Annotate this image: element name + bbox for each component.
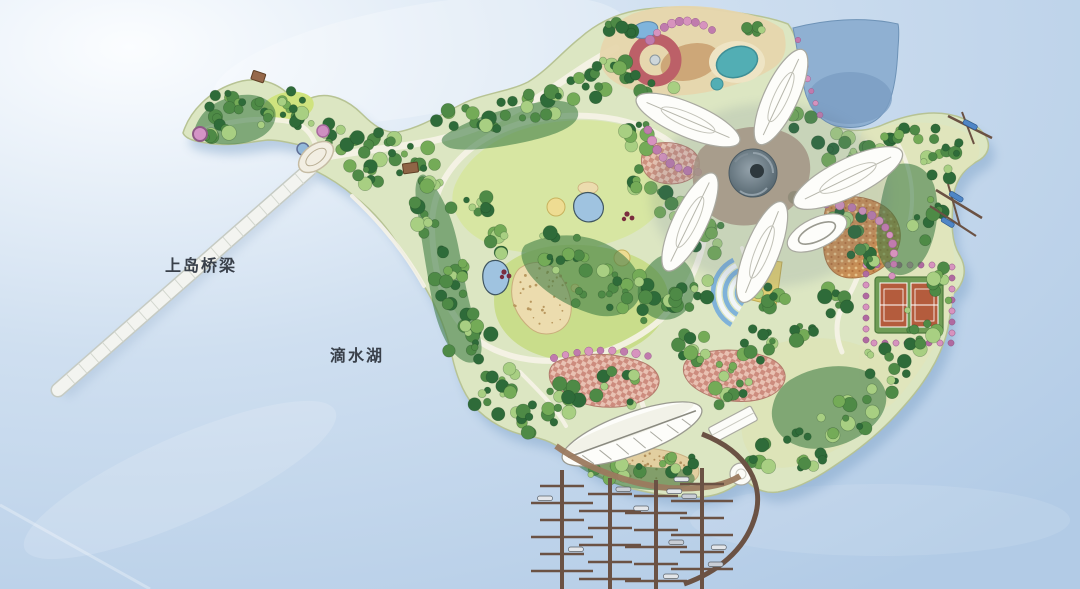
tree <box>902 370 910 378</box>
tree <box>885 352 894 361</box>
garden-circle-pink <box>193 127 207 141</box>
flowering-tree <box>683 17 691 25</box>
tree <box>886 386 899 399</box>
tree <box>263 113 272 122</box>
tree <box>473 354 483 364</box>
sand-speckle <box>519 281 521 283</box>
tree <box>486 371 498 383</box>
tree <box>500 232 508 240</box>
tree <box>671 464 681 474</box>
tree <box>736 380 743 387</box>
sand-speckle <box>561 310 563 312</box>
tree <box>636 122 642 128</box>
boat <box>568 547 583 552</box>
flowering-tree <box>809 88 814 93</box>
tree <box>621 292 633 304</box>
tree <box>280 112 286 118</box>
tree <box>234 105 243 114</box>
tree <box>445 202 457 214</box>
boat <box>538 496 553 501</box>
plan-canvas: 上岛桥梁 滴水湖 <box>0 0 1080 589</box>
tree <box>618 124 632 138</box>
yellow-feature-circle <box>547 198 565 216</box>
tree <box>862 395 871 404</box>
tree <box>907 220 919 232</box>
tree <box>716 361 723 368</box>
tree <box>386 137 395 146</box>
tree <box>299 97 306 104</box>
flowering-tree <box>550 354 557 361</box>
water-highlight <box>690 484 1070 556</box>
tree <box>504 386 517 399</box>
tree <box>634 164 643 173</box>
core-oculus <box>750 164 764 178</box>
tree <box>457 271 468 282</box>
tree <box>700 290 714 304</box>
lawn-pond <box>483 260 509 294</box>
flowering-tree <box>863 337 869 343</box>
tree <box>931 124 940 133</box>
tree <box>640 317 647 324</box>
tree <box>842 415 849 422</box>
tree <box>542 402 555 415</box>
tree <box>714 400 724 410</box>
tree <box>761 459 776 474</box>
tree <box>420 179 435 194</box>
sand-speckle <box>644 454 647 457</box>
flowering-tree <box>675 17 684 26</box>
flowering-tree <box>585 347 593 355</box>
sand-speckle <box>650 465 652 467</box>
tree <box>484 235 497 248</box>
tree <box>748 325 757 334</box>
flowering-tree <box>863 271 869 277</box>
sand-speckle <box>543 306 545 308</box>
tree <box>913 134 923 144</box>
tree <box>540 109 552 121</box>
flowering-tree <box>667 19 676 28</box>
lake-label: 滴水湖 <box>330 346 384 365</box>
sand-speckle <box>649 452 651 454</box>
tree <box>553 377 567 391</box>
tree <box>887 376 895 384</box>
sand-speckle <box>533 317 534 318</box>
flowering-tree <box>645 35 655 45</box>
tree <box>508 96 518 106</box>
tree <box>590 389 603 402</box>
tree <box>573 72 585 84</box>
flowering-tree <box>893 340 899 346</box>
tree <box>910 125 920 135</box>
tree <box>817 289 832 304</box>
tree <box>613 277 622 286</box>
flowering-tree <box>890 250 898 258</box>
tree <box>755 438 769 452</box>
flowering-tree <box>632 349 641 358</box>
tree <box>547 254 553 260</box>
flowering-tree <box>620 348 628 356</box>
flowering-tree <box>949 330 955 336</box>
tree <box>443 345 456 358</box>
tree <box>350 131 364 145</box>
tree <box>373 128 383 138</box>
tree <box>444 266 453 275</box>
tree <box>483 398 491 406</box>
tree <box>458 259 467 268</box>
tree <box>628 370 639 381</box>
flowering-tree <box>871 340 877 346</box>
tree <box>745 378 753 386</box>
sand-speckle <box>530 301 532 303</box>
tree <box>598 291 605 298</box>
tree <box>668 82 680 94</box>
boat <box>669 540 684 545</box>
tree <box>637 304 649 316</box>
flowering-tree <box>949 319 955 325</box>
flowering-tree <box>654 29 661 36</box>
tree <box>683 346 697 360</box>
tree <box>698 331 710 343</box>
peninsula-pavilion <box>402 162 418 174</box>
lawn-pond <box>574 193 604 222</box>
tree <box>308 120 314 126</box>
tree <box>708 381 722 395</box>
tree <box>926 328 941 343</box>
bridge-label: 上岛桥梁 <box>165 256 237 275</box>
tree <box>697 356 704 363</box>
tree <box>889 363 901 375</box>
flowering-tree <box>813 101 818 106</box>
sand-speckle <box>529 285 532 288</box>
tree <box>225 90 232 97</box>
tree <box>493 124 501 132</box>
flowering-tree <box>691 18 699 26</box>
flowering-tree <box>949 275 955 281</box>
sand-speckle <box>653 459 655 461</box>
tree <box>492 407 505 420</box>
flowering-tree <box>887 232 894 239</box>
tree <box>497 98 506 107</box>
boat <box>708 562 723 567</box>
flowering-tree <box>609 347 617 355</box>
tree <box>547 388 554 395</box>
tree <box>521 101 533 113</box>
tree <box>827 428 838 439</box>
flowering-tree <box>863 293 869 299</box>
sand-speckle <box>629 463 631 465</box>
tree <box>424 218 433 227</box>
tree <box>789 333 803 347</box>
tree <box>409 197 421 209</box>
tree <box>573 234 580 241</box>
tree <box>344 160 357 173</box>
tree <box>880 133 888 141</box>
flowering-tree <box>708 26 715 33</box>
tree <box>554 404 562 412</box>
tree <box>955 139 964 148</box>
tree <box>466 107 479 120</box>
tree <box>363 167 369 173</box>
tree <box>556 256 565 265</box>
tree <box>478 390 486 398</box>
flowering-tree <box>863 326 869 332</box>
tree <box>421 141 435 155</box>
sand-speckle <box>646 463 649 466</box>
tree <box>286 86 296 96</box>
tree <box>464 197 470 203</box>
boat <box>634 506 649 511</box>
tree <box>442 298 454 310</box>
tree <box>627 28 636 37</box>
tree <box>670 288 683 301</box>
flowering-tree <box>795 37 801 43</box>
tree <box>639 290 653 304</box>
tree <box>449 121 459 131</box>
tree <box>840 300 853 313</box>
sand-speckle <box>551 322 553 324</box>
tree <box>543 226 557 240</box>
sand-speckle <box>544 312 546 314</box>
tree <box>278 98 287 107</box>
tree <box>867 256 873 262</box>
flowering-tree <box>700 21 708 29</box>
tree <box>909 325 919 335</box>
tree <box>691 285 698 292</box>
boat <box>616 487 631 492</box>
tree <box>550 418 558 426</box>
tree <box>459 290 467 298</box>
boat <box>711 545 726 550</box>
tree <box>223 102 235 114</box>
tree <box>468 398 481 411</box>
tree <box>636 463 642 469</box>
tree <box>597 264 610 277</box>
tree <box>744 345 757 358</box>
sand-speckle <box>514 305 516 307</box>
tree <box>763 344 775 356</box>
tree <box>607 366 617 376</box>
tree <box>953 150 959 156</box>
tree <box>571 299 580 308</box>
tree <box>915 338 926 349</box>
sand-speckle <box>520 292 522 294</box>
tree <box>258 121 265 128</box>
tree <box>336 125 345 134</box>
tree <box>921 158 928 165</box>
tree <box>739 389 748 398</box>
tree <box>770 292 778 300</box>
sand-speckle <box>541 309 544 312</box>
tree <box>929 134 939 144</box>
tree <box>945 297 952 304</box>
ring-center <box>650 55 660 65</box>
tree <box>555 93 561 99</box>
tree <box>688 458 699 469</box>
tree <box>289 105 297 113</box>
tree <box>401 151 408 158</box>
tree <box>749 455 758 464</box>
flowering-tree <box>891 261 897 267</box>
tree <box>470 319 484 333</box>
tree <box>407 143 413 149</box>
sand-speckle <box>524 274 527 277</box>
tree <box>579 264 593 278</box>
tree <box>388 149 396 157</box>
tree <box>519 115 526 122</box>
tree <box>942 144 949 151</box>
flowering-tree <box>889 240 897 248</box>
tree <box>943 172 956 185</box>
tree <box>210 90 221 101</box>
boat <box>667 489 682 494</box>
tree <box>779 293 790 304</box>
tree <box>205 102 215 112</box>
flowering-tree <box>863 315 869 321</box>
tree <box>944 165 952 173</box>
sand-speckle <box>642 460 643 461</box>
tree <box>920 235 931 246</box>
tree <box>757 329 768 340</box>
tree <box>631 70 641 80</box>
boat <box>674 477 689 482</box>
tree <box>420 165 427 172</box>
flowering-tree <box>949 308 955 314</box>
tree <box>923 320 931 328</box>
tree <box>440 275 453 288</box>
tree <box>521 426 535 440</box>
tree <box>592 61 602 71</box>
tree <box>480 202 491 213</box>
boat <box>663 574 678 579</box>
flowering-tree <box>948 340 954 346</box>
tree <box>437 247 448 258</box>
tree <box>804 433 811 440</box>
tree <box>702 275 714 287</box>
tree <box>627 399 634 406</box>
flowering-tree <box>645 353 652 360</box>
tree <box>630 182 642 194</box>
tree <box>719 371 729 381</box>
tree <box>441 103 455 117</box>
tree <box>222 125 237 140</box>
teal-pool <box>711 78 723 90</box>
sand-speckle <box>538 323 540 325</box>
tree <box>594 83 602 91</box>
tree <box>606 304 613 311</box>
tree <box>927 170 937 180</box>
tree <box>833 395 845 407</box>
tree <box>552 266 560 274</box>
sand-speckle <box>529 308 531 310</box>
flowering-tree <box>574 349 581 356</box>
tree <box>460 320 472 332</box>
tree <box>589 91 602 104</box>
tree <box>648 79 656 87</box>
tree <box>799 457 811 469</box>
tree <box>826 308 836 318</box>
tree <box>867 352 874 359</box>
tree <box>588 472 594 478</box>
tree <box>758 26 765 33</box>
sand-speckle <box>559 319 560 320</box>
tree <box>467 308 479 320</box>
sand-speckle <box>559 304 561 306</box>
boat <box>682 494 697 499</box>
tree <box>927 196 934 203</box>
tree <box>616 21 629 34</box>
tree <box>796 428 804 436</box>
tree <box>530 113 540 123</box>
tree <box>575 287 582 294</box>
tree <box>667 452 677 462</box>
tree <box>255 97 264 106</box>
garden-circle-pink <box>317 125 329 137</box>
flowering-tree <box>644 126 652 134</box>
tree <box>500 110 511 121</box>
tree <box>783 436 791 444</box>
tree <box>817 414 825 422</box>
tree <box>685 303 694 312</box>
tree <box>396 170 403 177</box>
sand-speckle <box>658 455 660 457</box>
tree <box>567 93 580 106</box>
tree <box>684 332 696 344</box>
flowering-tree <box>863 282 869 288</box>
site-plan: 上岛桥梁 滴水湖 <box>0 0 1080 589</box>
tree <box>429 159 441 171</box>
tree <box>495 247 507 259</box>
tree <box>729 362 737 370</box>
tree <box>430 115 442 127</box>
tree <box>484 327 499 342</box>
tree <box>411 217 426 232</box>
flowering-tree <box>597 347 604 354</box>
tree <box>865 369 875 379</box>
tree <box>573 250 584 261</box>
flowering-tree <box>929 262 935 268</box>
tree <box>358 146 370 158</box>
flowering-tree <box>653 145 662 154</box>
tree <box>606 291 612 297</box>
tree <box>469 204 476 211</box>
flowering-tree <box>562 352 569 359</box>
tree <box>866 405 880 419</box>
tree <box>471 344 478 351</box>
flowering-tree <box>889 273 896 280</box>
tree <box>856 423 863 430</box>
tree <box>353 170 364 181</box>
tree <box>479 119 493 133</box>
flowering-tree <box>949 286 955 292</box>
tree <box>809 326 819 336</box>
sand-speckle <box>679 461 682 464</box>
tree <box>634 277 644 287</box>
sand-speckle <box>535 284 538 287</box>
tree <box>867 384 877 394</box>
tree <box>914 214 920 220</box>
tree <box>561 390 575 404</box>
tree <box>818 456 827 465</box>
tree <box>741 22 752 33</box>
tree <box>769 338 775 344</box>
tree <box>659 460 666 467</box>
tree <box>613 61 627 75</box>
tree <box>503 362 516 375</box>
tree <box>904 307 910 313</box>
tree <box>928 152 937 161</box>
tree <box>756 356 764 364</box>
tree <box>894 130 904 140</box>
